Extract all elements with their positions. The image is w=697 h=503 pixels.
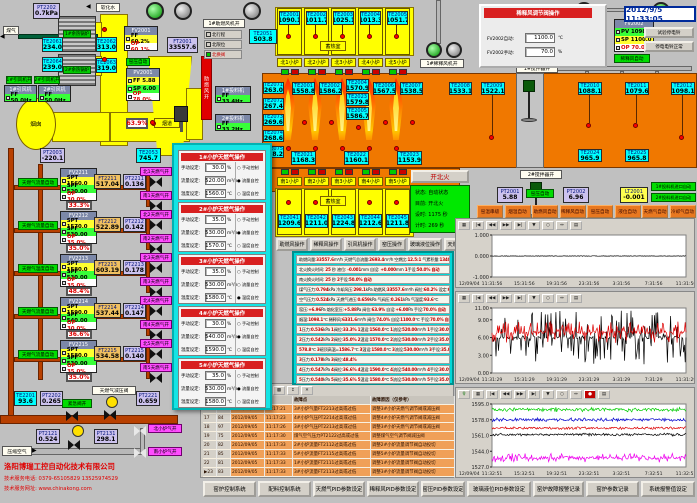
setpoint-field[interactable]: 540.00 [205,332,226,341]
chart-tool-export-button[interactable]: ▤ [570,294,582,303]
gas-valve-position: 48.4% [66,287,92,296]
gas-train-auto-label: 天燃气流量自动 [18,178,58,187]
chart-tool-next-button[interactable]: ▶▶ [514,390,526,399]
alarm-cell: 5#小炉流量FT2115过高或过低 [293,450,371,459]
north-gas-valve[interactable] [150,306,162,316]
alarm-cell: 3#小炉气压PT2213过高或过低 [293,423,371,432]
tag-te2051: TE2051503.8 [249,29,277,44]
auto-mode-button[interactable]: 窑温串级 [477,205,503,218]
stirrer-2-open-label: 2#搅拌器开 [520,170,562,179]
dilution-auto-label: 稀释风自动 [614,54,650,63]
alarm-header-cell: 故障点 [293,396,371,405]
tag-te2044: TE20441212.6 [359,214,382,228]
south-air-open-label: 南小炉气开 [148,447,182,456]
gas-setpoint-panel-5: 5#小炉天燃气操作手动设定:35.0%○ 手动控制流量设定:530.00m³/h… [178,358,266,408]
setpoint-field[interactable]: 530.00 [205,384,226,393]
parameter-row: 空气压力:0.524kPa 天燃气进压:0.659kPa 气阀压:0.261kP… [296,295,450,304]
trend-chart-2: ▦|◀◀◀▶▶▶|▼○↔▤11.009.006.003.000.0012/09/… [455,291,695,384]
thermocouple-dot [286,34,291,39]
comb-fan-1-open-label: 1#助燃风机开 [203,19,245,28]
alarm-cell: 2012/09/05 [231,441,265,450]
dilution-popup-title: 稀释风调节阀操作 [484,8,592,18]
tag-te2022: TE20221160.1 [344,151,369,165]
north-gas-valve[interactable] [150,220,162,230]
tag-pt2213: PT22130.178 [123,260,146,275]
thermocouple-dot [679,135,684,140]
gas-panel-title: 5#小炉天燃气操作 [181,361,263,369]
thermocouple-dot [302,120,307,125]
port-indicator-green [362,69,370,75]
gas-setpoint-panel-2: 2#小炉天燃气操作手动设定:35.0%○ 手动控制流量设定:530.00m³/h… [178,202,266,252]
chart-tool-zoom-button[interactable]: ○ [542,294,554,303]
dilution-row-unit: % [558,48,572,57]
tag-te2053: TE2053745.7 [136,148,161,163]
south-air-valve[interactable] [134,448,146,458]
south-port-indicator-red [345,169,353,175]
tag-te2024: TE2024965.9 [578,149,602,162]
air-flow-arrow: ▶ [32,447,40,455]
id-fan-2-box: 2#引风机 FF 50.0Hz [38,85,71,102]
dilution-row-label: FV2002自动: [487,34,523,43]
chart-tool-last-button[interactable]: ▶| [514,221,526,230]
south-port-indicator-green [389,169,397,175]
mode-radio-手动控制[interactable]: ○ 手动控制 [237,372,266,380]
svg-text:19:31:29: 19:31:29 [546,377,567,383]
south-port-label: 南4小炉 [358,177,383,186]
comb-air-bar: 助燃风开 [201,56,212,120]
chart-tool-grid-button[interactable]: ▦ [458,221,470,230]
reducer-valve[interactable] [104,410,116,420]
feeder-1-auto-label: 1#投料机进口自动 [651,182,696,191]
setpoint-field[interactable]: 520.00 [205,176,226,185]
svg-text:3:31:56: 3:31:56 [612,281,630,287]
stirrer-1-disc [521,118,537,122]
chart-tool-first-button[interactable]: |◀ [472,294,484,303]
tag-te2004: TE20041013.3 [360,11,381,25]
north-port-label: 北2小炉 [304,58,329,67]
mode-radio-手动控制[interactable]: ○ 手动控制 [237,320,266,328]
mode-radio-温度自控[interactable]: ○ 温度自控 [237,346,266,354]
alarm-row[interactable]: 17842012/09/0511:17:234#小炉气压PT2214过高或过低调… [203,414,455,423]
mode-radio-流量自控[interactable]: ○ 流量自控 [237,281,266,289]
tag-te2010: TE20101088.1 [578,82,602,95]
south-regen-cell [385,189,410,235]
chart-tool-stop-button[interactable]: ● [584,390,596,399]
damper-actuator-icon [174,106,188,122]
system-nav-button[interactable]: 配料控制系统 [258,481,311,497]
chart-tool-zoom-button[interactable]: ○ [542,221,554,230]
chart-tool-zoom-button[interactable]: ○ [556,390,568,399]
setpoint-field[interactable]: 1570.0 [205,241,226,250]
thermocouple-dot [410,120,415,125]
setpoint-label: 温度设定: [181,346,205,354]
svg-text:11:32:51: 11:32:51 [676,471,694,477]
connector-line [589,95,590,123]
south-gas-open-label: 南4天燃气开 [140,320,172,329]
connector-line [369,25,370,34]
setpoint-label: 温度设定: [181,294,205,302]
connector-line [315,25,316,34]
alarm-cell: 85 [217,450,231,459]
thermocouple-dot [367,200,372,205]
chart-tool-key-button[interactable]: ♀ [458,390,470,399]
south-port-label: 南5小炉 [385,177,410,186]
tag-te2043: TE20431224.8 [332,214,355,228]
svg-text:19:32:51: 19:32:51 [546,471,567,477]
dilution-row-unit: ℃ [558,34,572,43]
chart-tool-export-button[interactable]: ▤ [598,390,610,399]
svg-text:1578.0: 1578.0 [472,418,490,424]
air-valve[interactable] [68,440,80,450]
tag-te2001: TE20011090.1 [279,11,300,25]
port-indicator-red [345,69,353,75]
company-website[interactable]: 技术服务网址: www.chinakong.com [4,485,219,494]
auto-mode-button[interactable]: 窑压自动 [587,205,613,218]
operation-button[interactable]: 稀释风操作 [310,238,342,251]
svg-text:11.00: 11.00 [475,306,489,312]
setpoint-field[interactable]: 35.0 [205,215,226,224]
reversal-status-row: 目前: 开北火 [415,200,469,210]
alarm-cell: 煤气空气压力PT2122过高或过低 [293,432,371,441]
setpoint-field[interactable]: 35.0 [205,371,226,380]
tag-te2072: TE2072267.4 [263,98,284,110]
id-fan-2-open-label: 2#引风机开 [34,76,60,84]
mode-radio-温度自控[interactable]: ○ 温度自控 [237,242,266,250]
dilution-row-field[interactable]: 70.0 [525,47,555,57]
svg-text:1561.0: 1561.0 [472,434,490,440]
tag-te2012: TE20121098.1 [671,82,695,95]
south-port-label: 南2小炉 [304,177,329,186]
chart-tool-prev-button[interactable]: ◀◀ [486,294,498,303]
mode-radio-流量自控[interactable]: ● 流量自控 [237,177,266,185]
mode-radio-流量自控[interactable]: ● 流量自控 [237,333,266,341]
svg-text:0.00: 0.00 [478,371,489,377]
waste-heat-boiler-2: 2#余热锅炉 [58,54,96,86]
alarm-cell: 调整3#小炉天燃气调节阀或减压阀 [371,405,455,414]
north-gas-open-label: 北4天燃气开 [140,296,172,305]
tag-ft2213: FT2213603.19 [94,260,121,275]
chart-tool-last-button[interactable]: ▶| [514,294,526,303]
kiln-pressure-auto-label-2: 窑压自动 [526,189,554,198]
tag-te2201: TE220193.6 [14,391,37,406]
north-gas-open-label: 北3天燃气开 [140,253,172,262]
bell-normal-button[interactable]: 停电电铃正常 [644,41,694,52]
mode-radio-温度自控[interactable]: ○ 温度自控 [237,398,266,406]
alarm-cell: 2012/09/05 [231,414,265,423]
auto-mode-button[interactable]: 冷却气自动 [670,205,696,218]
stirrer-1-shaft [528,92,530,118]
setpoint-label: 流量设定: [181,177,205,185]
tag-te2045: TE20451211.8 [386,214,409,228]
port-indicator-green [335,69,343,75]
damper-stem [180,122,183,132]
south-port-indicator-red [318,169,326,175]
company-phone: 技术服务电话: 0379-65105829 13525974529 [4,475,219,484]
setpoint-label: 手动设定: [181,372,205,380]
chart-toolbar: ▦|◀◀◀▶▶▶|▼○↔▤ [458,293,692,303]
feeder-1-box: 1#投料机 FF 33.4Hz [215,86,251,103]
operation-button[interactable]: 助燃风操作 [276,238,308,251]
chart-tool-pen-button[interactable]: ▼ [528,294,540,303]
system-nav-button[interactable]: 玻璃液位PID参数设定 [467,481,531,497]
fan-icon [174,2,192,20]
alarm-header-cell: 故障原因（仅参考） [371,396,455,405]
panel-divider [235,266,236,303]
thermocouple-dot [367,34,372,39]
alarm-cell: 调整煤气空气调节阀减压阀 [371,432,455,441]
gas-setpoint-panel-4: 4#小炉天燃气操作手动设定:30.0%○ 手动控制流量设定:540.00m³/h… [178,306,266,356]
operation-button[interactable]: 玻璃液位操作 [408,238,442,251]
mode-radio-手动控制[interactable]: ○ 手动控制 [237,216,266,224]
parameter-row: 1压力:0.536kPa 1阀位:33.3% 1温设:1560.0℃ 1流设:5… [296,325,450,334]
thermocouple-dot [313,200,318,205]
south-port-label: 南1小炉 [277,177,302,186]
company-info: 洛阳博瑞工控自动化技术有限公司 技术服务电话: 0379-65105829 13… [4,461,219,501]
reversal-button[interactable]: 开北火 [411,170,469,183]
svg-text:15:32:51: 15:32:51 [514,471,535,477]
thermocouple-dot [313,34,318,39]
company-name: 洛阳博瑞工控自动化技术有限公司 [4,461,219,473]
chart-tool-grid-button[interactable]: ▦ [458,294,470,303]
south-gas-open-label: 南3天燃气开 [140,277,172,286]
alarm-row[interactable]: ▶23832012/09/0511:17:333#小炉流量FT2113过高或过低… [203,468,455,477]
setpoint-field[interactable]: 1580.0 [205,293,226,302]
mode-radio-流量自控[interactable]: ● 流量自控 [237,229,266,237]
tag-pt2221: PT22210.659 [136,391,160,406]
setpoint-field[interactable]: 1580.0 [205,397,226,406]
thermocouple-dot [383,120,388,125]
alarm-cell: 2012/09/05 [231,423,265,432]
parameter-row: 3压力:0.178kPa 3阀位:48.4% [296,355,450,364]
alarm-row[interactable]: 21852012/09/0511:17:335#小炉流量FT2115过高或过低调… [203,450,455,459]
south-port-indicator-red [291,169,299,175]
furnace-gas-popup: 1#小炉天燃气操作手动设定:30.0%○ 手动控制流量设定:520.00m³/h… [172,143,272,410]
tag-pt2212: PT22120.142 [123,217,146,232]
fan-icon [243,2,261,20]
north-gas-valve[interactable] [150,349,162,359]
svg-text:3:32:51: 3:32:51 [612,471,630,477]
alarm-cell: 2012/09/05 [231,432,265,441]
setpoint-label: 手动设定: [181,320,205,328]
system-nav-button[interactable]: 窑炉故障报警记录 [533,481,584,497]
chart-tool-first-button[interactable]: |◀ [486,390,498,399]
chart-toolbar: ♀▦|◀◀◀▶▶▶|▼○↔●▤ [458,389,692,399]
system-nav-button[interactable]: 系统报警值设定 [641,481,695,497]
tag-pt2001: PT20015.88 [497,187,523,203]
panel-divider [235,162,236,199]
chart-tool-next-button[interactable]: ▶▶ [500,294,512,303]
svg-text:9.00: 9.00 [478,318,489,324]
auto-mode-button[interactable]: 烟温自动 [505,205,531,218]
thermocouple-dot [150,120,155,125]
north-gas-valve[interactable] [150,263,162,273]
mode-radio-手动控制[interactable]: ○ 手动控制 [237,164,266,172]
alarm-row[interactable]: 18972012/09/0511:17:263#小炉气压PT2213过高或过低调… [203,423,455,432]
gas-train-controller: FV2211SPT 1560.0SPF 520.00OP 30.0% [60,168,97,201]
system-nav-button[interactable]: 窑炉参数记录 [586,481,639,497]
chart-tool-pen-button[interactable]: ▼ [528,221,540,230]
tag-lt2001: LT2001-0.001 [620,187,648,203]
svg-text:15:31:29: 15:31:29 [514,377,535,383]
tag-te2005: TE20051051.7 [387,11,408,25]
parameter-row: 煤气压力:0.794kPa 冷却风压:298.1kPa 助燃风:33557.6m… [296,285,450,294]
south-regen-cell [358,189,383,235]
regenerator-label-north: 蓄热室 [320,41,346,51]
trend-chart-1: ▦|◀◀◀▶▶▶|▼○↔▤1.0000.000-1.00012/09/0411:… [455,218,695,288]
tag-ft2212: FT2212522.89 [94,217,121,232]
id-fan-1-open-label: 1#引风机开 [6,76,32,84]
chart-tool-fit-button[interactable]: ↔ [556,294,568,303]
parameter-row: 窑压:+6.96Pa 熔化室压:+5.88Pa 阀位:63.9% 自设:+6.0… [296,305,450,314]
panel-divider [235,370,236,407]
setpoint-label: 流量设定: [181,281,205,289]
alarm-tool-cut-button[interactable]: ✕ [301,386,313,395]
north-air-valve[interactable] [134,426,146,436]
alarm-cell: 调整3#小炉天燃气调节阀或减压阀 [371,423,455,432]
svg-text:1595.0: 1595.0 [472,402,490,408]
chart-tool-fit-button[interactable]: ↔ [570,390,582,399]
tag-te2064: TE2064239.0 [42,57,63,72]
connector-line [492,95,493,135]
mode-radio-手动控制[interactable]: ○ 手动控制 [237,268,266,276]
south-port-indicator-red [372,169,380,175]
flue-duct [52,112,110,142]
connector-line [636,95,637,123]
chart-tool-export-button[interactable]: ▤ [570,221,582,230]
alarm-row[interactable]: 22812012/09/0511:17:331#小炉流量FT2111过高或过低调… [203,459,455,468]
chart-tool-grid-button[interactable]: ▦ [472,390,484,399]
setpoint-field[interactable]: 35.0 [205,267,226,276]
alarm-cell: 11:17:33 [265,468,293,477]
auto-mode-button[interactable]: 稀释风自动 [560,205,586,218]
dilution-fan-1-icon [426,42,442,58]
emergency-valve-open-label: 紧急阀开 [62,399,92,408]
operation-button[interactable]: 窑压操作 [378,238,406,251]
panel-divider [235,318,236,355]
mode-radio-流量自控[interactable]: ● 流量自控 [237,385,266,393]
parameter-row: 烟温:1098.1℃ 稀释风:6331.6m³/h 阀位:74.0% 自设:11… [296,315,450,324]
chart-tool-prev-button[interactable]: ◀◀ [500,390,512,399]
parameter-row: 5压力:0.540kPa 5阀位:35.6% 5温设:1580.0℃ 5流设:5… [296,375,450,384]
thermocouple-dot [102,27,107,32]
comb-air-controller: FV2001FF 60.2%OP 60.1% [124,26,158,51]
south-port-indicator-green [308,169,316,175]
alarm-cell: 17 [203,414,217,423]
flame-core [312,89,318,131]
tag-pt2202: PT22020.7kPa [33,3,60,19]
auto-mode-button[interactable]: 液位自动 [615,205,641,218]
setpoint-field[interactable]: 30.0 [205,319,226,328]
mode-radio-温度自控[interactable]: ○ 温度自控 [237,190,266,198]
setpoint-label: 手动设定: [181,216,205,224]
parameter-row: 助燃风量:33557.6m³/h 天燃气总流量:2693.4m³/h 空燃比:1… [296,255,450,264]
alarm-row[interactable]: 19752012/09/0511:17:30煤气空气压力PT2122过高或过低调… [203,432,455,441]
tag-te2023: TE20231579.8 [346,93,369,106]
alarm-cell: 19 [203,432,217,441]
thermocouple-dot [329,120,334,125]
south-gas-open-label: 南1天燃气开 [140,191,172,200]
compressed-air-label: 压缩空气 [2,446,32,456]
tag-te2071: TE2071263.0 [263,82,284,94]
alarm-row[interactable]: 20822012/09/0511:17:332#小炉流量FT2112过高或过低调… [203,441,455,450]
south-gas-valve[interactable] [150,373,162,383]
soft-water-arrow: ◀ [86,3,94,11]
trend-chart-3: ♀▦|◀◀◀▶▶▶|▼○↔●▤1595.01578.01561.01544.01… [455,387,695,478]
alarm-cell: 3#小炉气量FT2213过高或过低 [293,405,371,414]
chart-tool-prev-button[interactable]: ◀◀ [486,221,498,230]
feeder-2-box: 2#投料机 FF 33.2Hz [215,114,251,131]
parameter-panel: 助燃风量:33557.6m³/h 天燃气总流量:2693.4m³/h 空燃比:1… [292,251,454,385]
svg-text:11:32:51: 11:32:51 [482,471,503,477]
flame-core [339,89,345,131]
chart-tool-first-button[interactable]: |◀ [472,221,484,230]
chart-tool-fit-button[interactable]: ↔ [556,221,568,230]
alarm-cell: 1#小炉流量FT2111过高或过低 [293,459,371,468]
connector-line [396,25,397,34]
system-nav-button[interactable]: 窑压PID参数设定 [421,481,465,497]
tag-pt2215: PT22150.140 [123,346,146,361]
kiln-pressure-auto-label: 窑压自动 [126,58,150,66]
alarm-tool-sort-button[interactable]: ↕ [287,386,299,395]
chart-tool-next-button[interactable]: ▶▶ [500,221,512,230]
thermocouple-dot [586,123,591,128]
alarm-cell: 2012/09/05 [231,468,265,477]
auto-mode-button[interactable]: 助燃风自动 [532,205,558,218]
svg-text:3:31:29: 3:31:29 [612,377,630,383]
setpoint-field[interactable]: 530.00 [205,280,226,289]
south-port-indicator-green [281,169,289,175]
bell-test-button[interactable]: 试验停电铃 [644,27,694,38]
operation-button[interactable]: 引风机操作 [344,238,376,251]
system-nav-button[interactable]: 天燃气PID参数设定 [313,481,365,497]
chart-tool-pen-button[interactable]: ▼ [542,390,554,399]
setpoint-field[interactable]: 530.00 [205,228,226,237]
alarm-cell: 75 [217,432,231,441]
alarm-cell: 11:17:33 [265,450,293,459]
chart-tool-last-button[interactable]: ▶| [528,390,540,399]
svg-text:23:32:51: 23:32:51 [579,471,600,477]
system-nav-button[interactable]: 稀释风PID参数设定 [367,481,419,497]
gas-flow-arrow: ◀ [0,33,8,41]
setpoint-field[interactable]: 1560.0 [205,189,226,198]
alarm-tool-filter-button[interactable]: ▩ [273,386,285,395]
alarm-cell: 2#小炉流量FT2112过高或过低 [293,441,371,450]
gas-train-controller: FV2212SPT 1570.0SPF 530.00OP 35.0% [60,211,97,244]
tag-te2073: TE2073269.6 [263,114,284,126]
north-gas-valve[interactable] [150,177,162,187]
emergency-valve[interactable] [66,411,78,421]
dilution-fan-2-icon [446,42,462,58]
flame-core [393,89,399,131]
mode-radio-温度自控[interactable]: ● 温度自控 [237,294,266,302]
chimney-shape: 烟囱 [16,98,56,150]
tag-te2002: TE20021011.7 [306,11,327,25]
svg-text:1544.0: 1544.0 [472,449,490,455]
setpoint-label: 流量设定: [181,333,205,341]
setpoint-field[interactable]: 30.0 [205,163,226,172]
tag-te2042: TE20421211.0 [305,214,328,228]
connector-line [288,25,289,34]
dilution-row-field[interactable]: 1100.0 [525,33,555,43]
limit-indicator-北换阀: 北换阀 [204,50,242,59]
tag-pt2131: PT2131298.1 [94,429,118,444]
port-indicator-red [291,69,299,75]
setpoint-label: 流量设定: [181,385,205,393]
alarm-cell: 11:17:26 [265,423,293,432]
auto-mode-button[interactable]: 天燃气自动 [642,205,668,218]
svg-text:12/09/04: 12/09/04 [459,471,480,477]
setpoint-field[interactable]: 1590.0 [205,345,226,354]
